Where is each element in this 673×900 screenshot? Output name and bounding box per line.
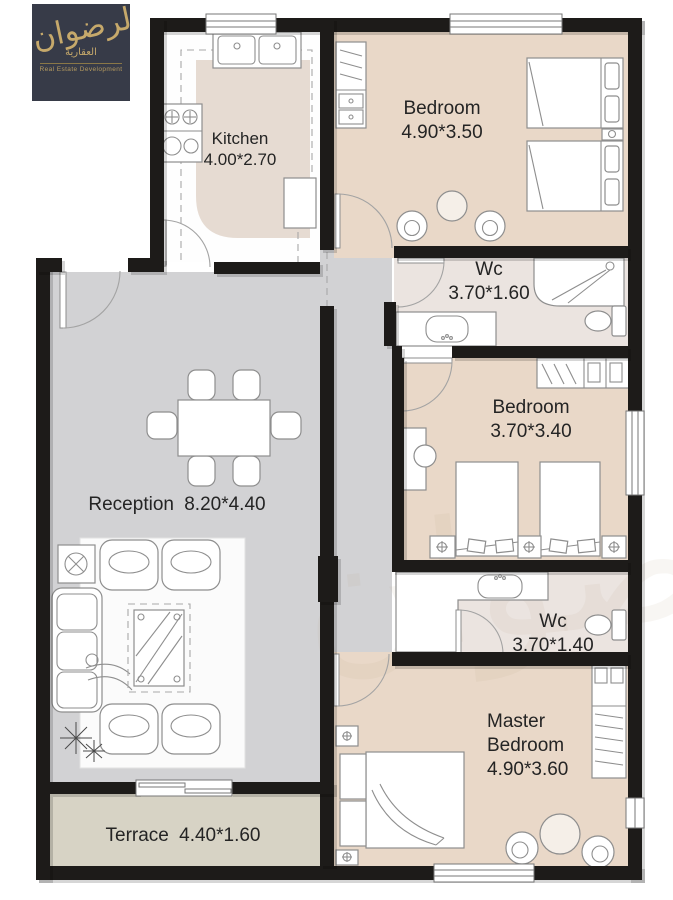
bedroom1-name: Bedroom — [403, 98, 480, 119]
bedroom2-dims: 3.70*3.40 — [490, 420, 571, 444]
wc2-label: Wc 3.70*1.40 — [512, 610, 593, 658]
kitchen-label: Kitchen 4.00*2.70 — [204, 128, 277, 171]
master-name-1: Master — [487, 710, 568, 734]
bedroom2-name: Bedroom — [492, 397, 569, 418]
wc2-name: Wc — [539, 611, 566, 632]
kitchen-dims: 4.00*2.70 — [204, 149, 277, 170]
bedroom2-label: Bedroom 3.70*3.40 — [490, 396, 571, 444]
bedroom1-window — [450, 14, 562, 34]
master-bottom-window — [434, 864, 534, 882]
wc1-dims: 3.70*1.60 — [448, 282, 529, 306]
wc2-dims: 3.70*1.40 — [512, 634, 593, 658]
windows-layer — [0, 0, 673, 900]
terrace-window — [136, 780, 232, 796]
bedroom1-label: Bedroom 4.90*3.50 — [401, 97, 482, 145]
bedroom2-window — [626, 411, 644, 495]
wc1-label: Wc 3.70*1.60 — [448, 258, 529, 306]
floor-plan: الرضوان — [0, 0, 673, 900]
brand-subtitle: Real Estate Development — [40, 63, 123, 73]
reception-name: Reception — [88, 494, 174, 515]
reception-label: Reception 8.20*4.40 — [88, 493, 265, 517]
master-dims: 4.90*3.60 — [487, 758, 568, 782]
terrace-label: Terrace 4.40*1.60 — [106, 824, 261, 848]
terrace-name: Terrace — [106, 825, 169, 846]
master-side-window — [626, 798, 644, 828]
brand-logo: الرضوان العقارية Real Estate Development — [32, 4, 130, 101]
reception-dims: 8.20*4.40 — [184, 494, 265, 515]
kitchen-window — [206, 14, 276, 34]
master-label: Master Bedroom 4.90*3.60 — [487, 710, 568, 782]
terrace-dims: 4.40*1.60 — [179, 825, 260, 846]
wc1-name: Wc — [475, 259, 502, 280]
master-name-2: Bedroom — [487, 734, 568, 758]
kitchen-name: Kitchen — [212, 129, 269, 148]
bedroom1-dims: 4.90*3.50 — [401, 121, 482, 145]
